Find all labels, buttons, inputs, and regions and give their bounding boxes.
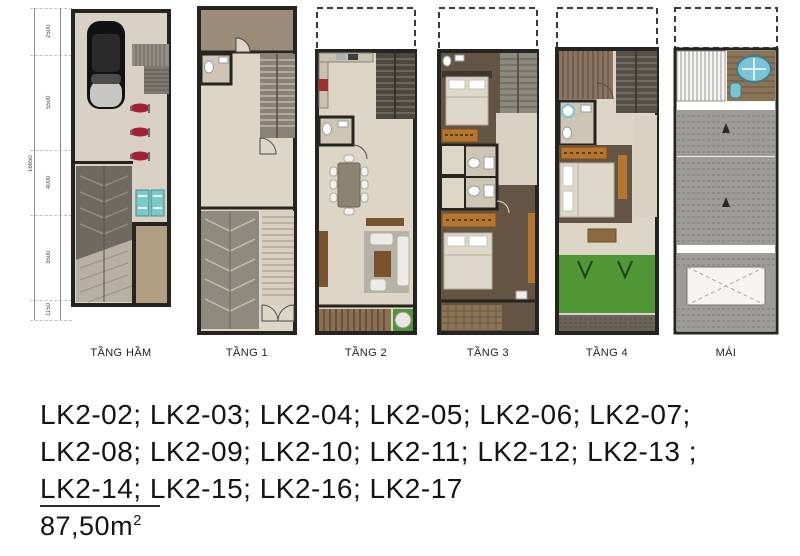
lot-codes: LK2-02; LK2-03; LK2-04; LK2-05; LK2-06; …	[40, 396, 697, 507]
floor-label-tang-2: TẦNG 2	[314, 347, 418, 363]
roof-edge	[559, 315, 655, 331]
car-icon	[87, 21, 125, 109]
floorplan-tang-1	[196, 5, 298, 336]
washer-icon	[562, 105, 574, 117]
bench	[618, 155, 627, 199]
floor-label-mai: MÁI	[672, 347, 780, 363]
storage-room	[134, 224, 169, 305]
dim-value: 5500	[44, 55, 54, 150]
landing	[496, 113, 537, 185]
bathroom	[201, 54, 231, 84]
landing	[634, 115, 657, 217]
dim-value: 3500	[44, 215, 54, 300]
lot-line-3: LK2-14; LK2-15; LK2-16; LK2-17	[40, 470, 697, 507]
area-label: 87,50m2	[40, 511, 142, 542]
ramp	[201, 211, 259, 329]
floorplan-mai	[672, 5, 780, 336]
dimension-line	[60, 8, 61, 320]
floor-label-tang-4: TẦNG 4	[554, 347, 660, 363]
table	[588, 229, 616, 242]
stairs	[616, 51, 657, 113]
wardrobe	[442, 213, 496, 227]
water-tank-deck	[727, 51, 775, 101]
dim-value: 4000	[44, 150, 54, 215]
bedroom	[559, 145, 632, 223]
grid-line	[30, 320, 72, 321]
bed	[442, 71, 492, 125]
pergola	[677, 51, 725, 101]
stairs	[500, 53, 537, 113]
cabinet	[319, 231, 328, 287]
wardrobe	[442, 129, 478, 142]
lot-line-2: LK2-08; LK2-09; LK2-10; LK2-11; LK2-12; …	[40, 433, 697, 470]
lot-line-1: LK2-02; LK2-03; LK2-04; LK2-05; LK2-06; …	[40, 396, 697, 433]
floorplan-tang-3	[436, 5, 540, 336]
void-above	[439, 8, 537, 50]
bathroom	[559, 101, 595, 145]
floorplan-tang-4	[554, 5, 660, 336]
tv-console	[366, 218, 404, 226]
floor-label-tang-3: TẦNG 3	[436, 347, 540, 363]
dim-value: 2500	[44, 8, 54, 55]
terrace-deck	[559, 51, 613, 99]
area-underline	[40, 505, 160, 507]
skylight	[687, 267, 765, 305]
dim-value: 1150	[44, 300, 54, 320]
void-above	[557, 8, 657, 48]
floor-plan-sheet: 2500 5500 4000 3500 1150 16650	[0, 0, 800, 556]
void-above	[675, 8, 777, 48]
bench	[528, 213, 535, 283]
floor-label-tang-1: TẦNG 1	[196, 347, 298, 363]
void-above	[317, 8, 415, 50]
area-value: 87,50m	[40, 511, 133, 541]
coffee-table	[374, 251, 391, 277]
floor-label-tang-ham: TẦNG HẦM	[70, 347, 172, 363]
area-sup: 2	[133, 512, 142, 529]
interior-wall	[73, 161, 133, 164]
bed	[444, 233, 492, 289]
floorplan-tang-ham	[70, 8, 172, 308]
roof-garden	[559, 255, 655, 313]
roof-gap	[677, 245, 775, 253]
small-tank-icon	[730, 83, 741, 98]
ramp	[76, 166, 132, 302]
balcony	[319, 309, 413, 331]
roof-tiles	[677, 110, 775, 331]
stairs	[376, 53, 415, 119]
roof-gap	[677, 102, 775, 110]
dim-total-value: 16650	[26, 8, 36, 320]
entry-stairs	[262, 211, 294, 321]
floorplan-tang-2	[314, 5, 418, 336]
